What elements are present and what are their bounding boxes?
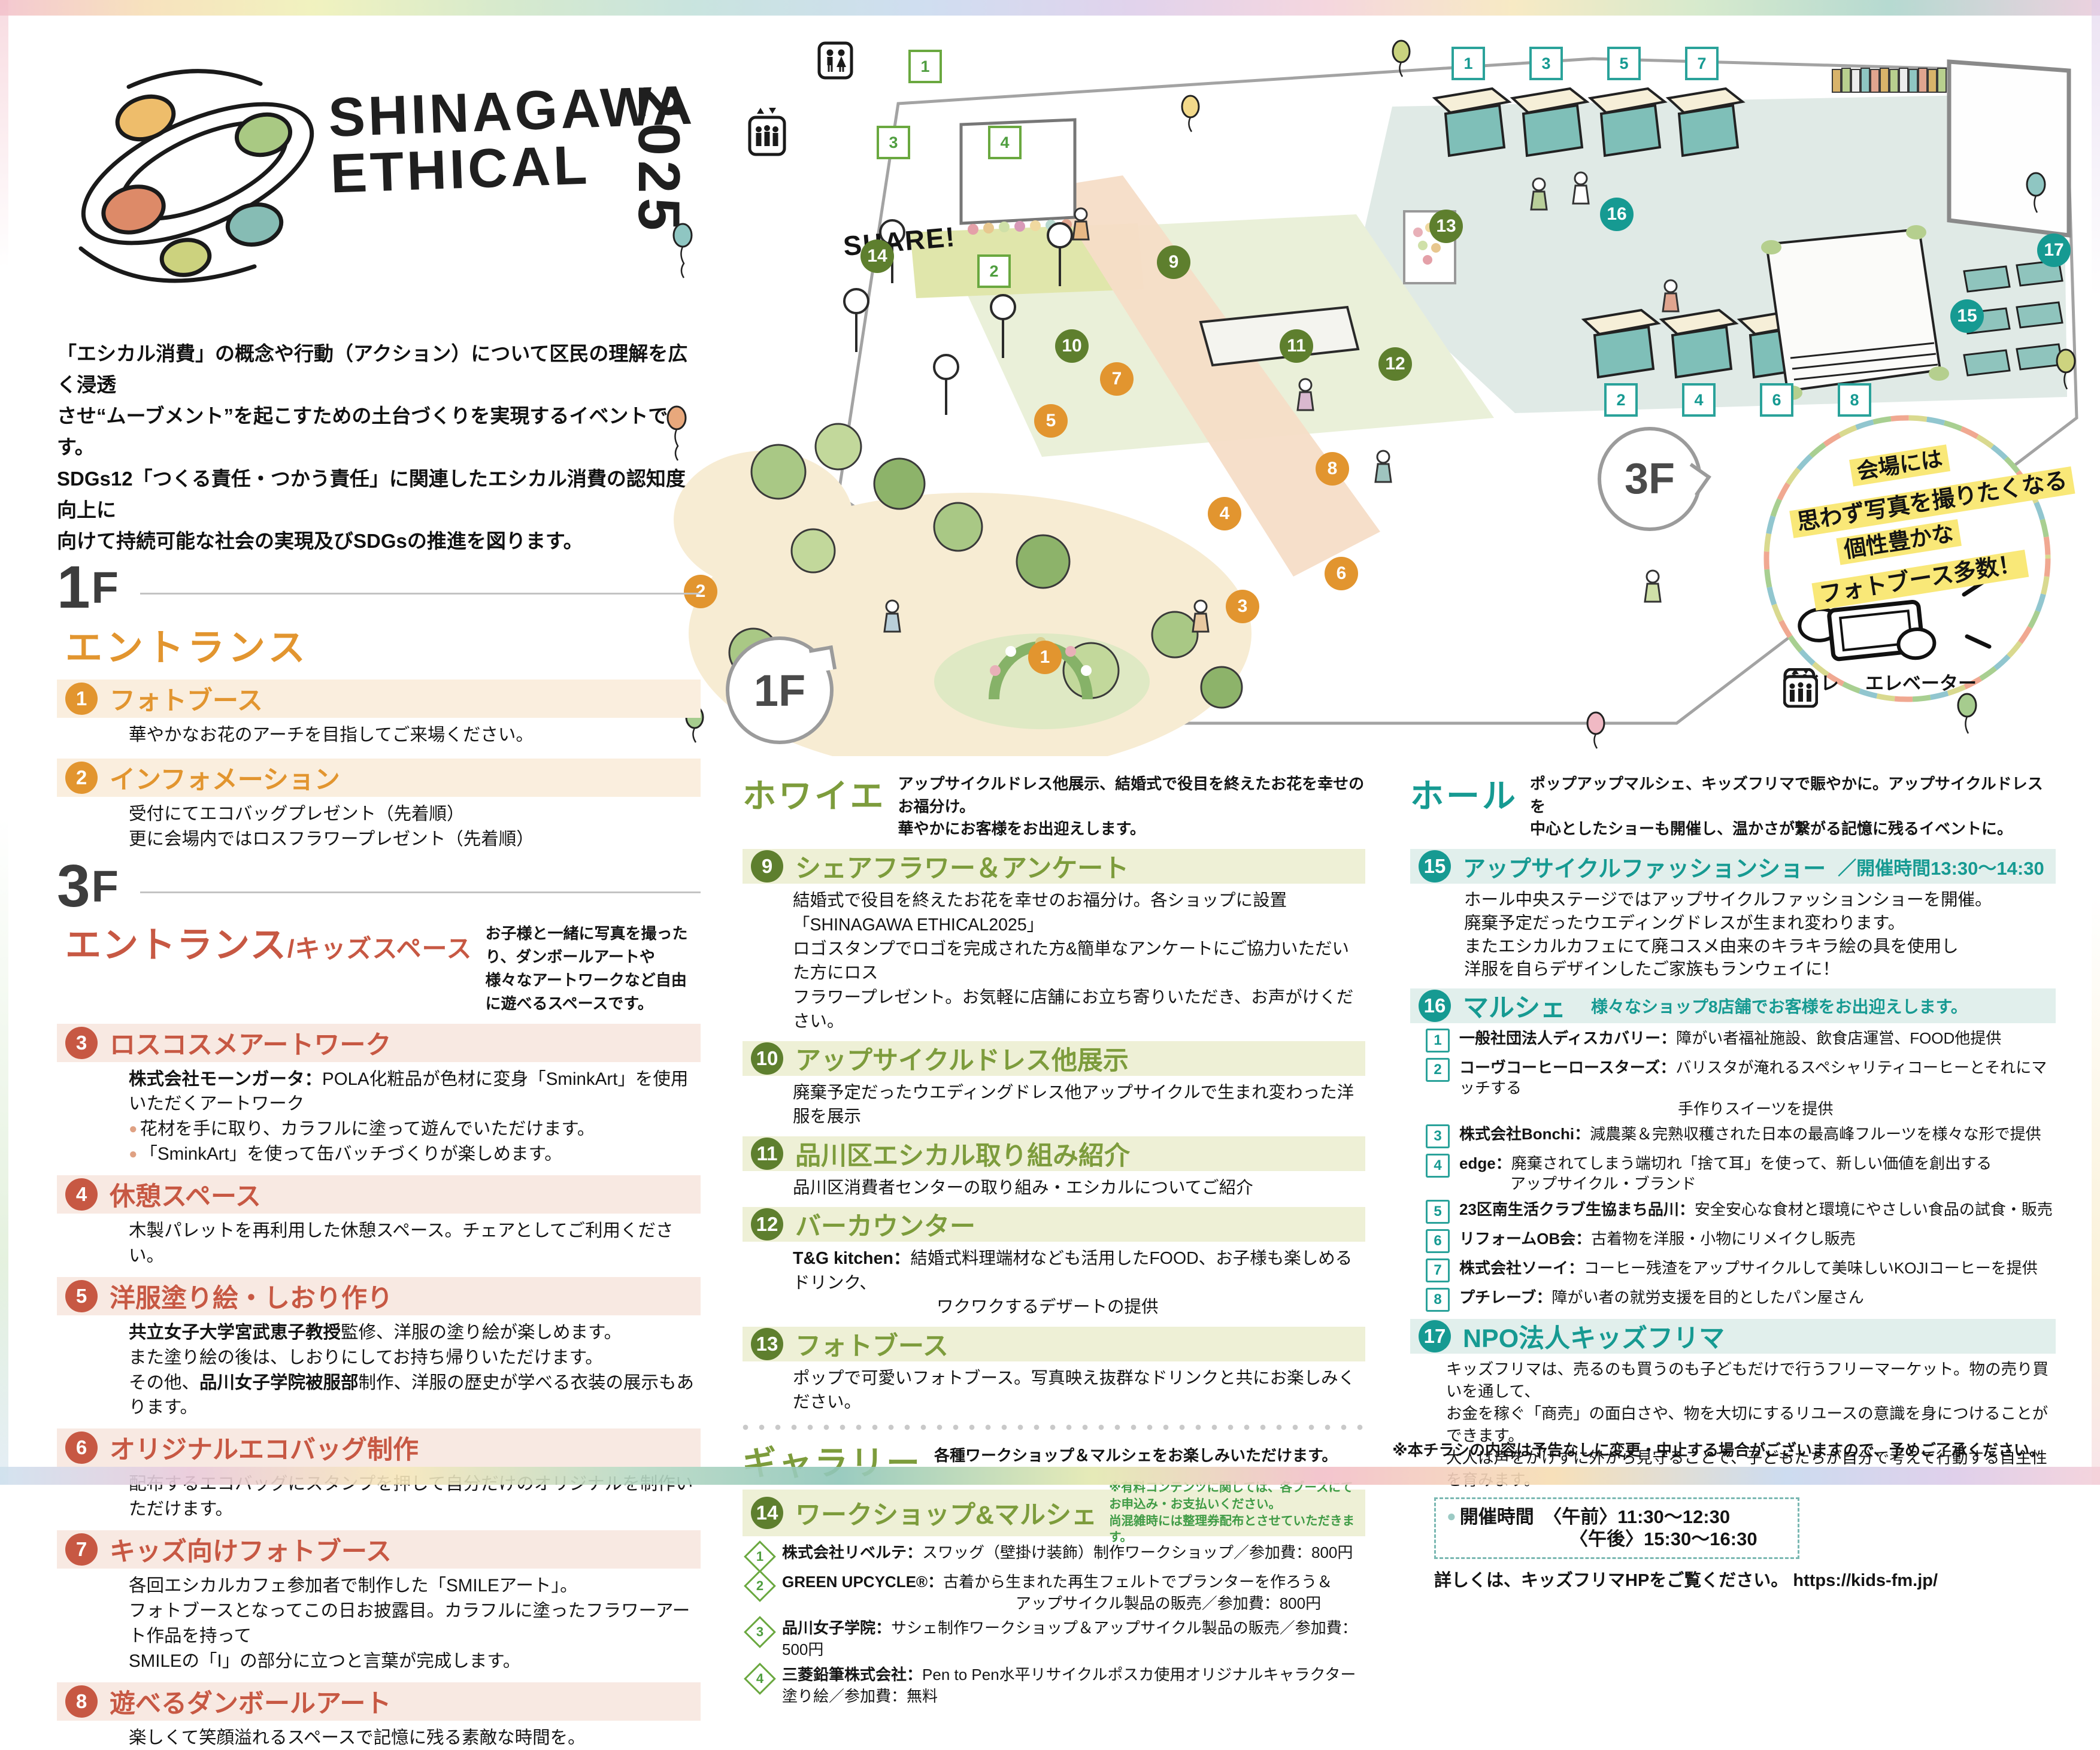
item-title-photobooth: フォトブース	[110, 680, 263, 717]
diamond-number-icon: 3	[744, 1616, 776, 1649]
subtitle-line: 華やかにお客様をお出迎えします。	[898, 818, 1365, 841]
legend-elevator-label: エレベーター	[1865, 668, 1977, 695]
item-title-barcounter: バーカウンター	[795, 1206, 975, 1243]
link-lead-text: 詳しくは、キッズフリマHPをご覧ください。	[1434, 1571, 1788, 1590]
flyer-page: { "logo": {"line1":"SHINAGAWA","line2":"…	[0, 0, 2100, 1485]
workshop-text: 三菱鉛筆株式会社：Pen to Pen水平リサイクルポスカ使用オリジナルキャラク…	[782, 1664, 1365, 1707]
logo-flower-illustration	[57, 51, 332, 302]
item-title-kids-fleamarket: NPO法人キッズフリマ	[1463, 1318, 1725, 1355]
map-badge-sg-1: 1	[908, 50, 942, 83]
desc-line: ホール中央ステージではアップサイクルファッションショーを開催。	[1464, 888, 2056, 912]
map-badge-st-3: 3	[1529, 47, 1563, 80]
kids-fleamarket-link-line: 詳しくは、キッズフリマHPをご覧ください。 https://kids-fm.jp…	[1434, 1566, 2056, 1591]
desc-line: キッズフリマは、売るのも買うのも子どもだけで行うフリーマーケット。物の売り買いを…	[1446, 1358, 2056, 1403]
map-badge-st-7: 7	[1685, 47, 1719, 80]
shop-line: edge：廃棄されてしまう端切れ「捨て耳」を使って、新しい価値を創出する	[1459, 1153, 1992, 1173]
item-band-17: 17 NPO法人キッズフリマ	[1410, 1319, 2056, 1354]
desc-line: ワクワクするデザートの提供	[793, 1295, 1365, 1319]
item-band-16: 16 マルシェ 様々なショップ8店舗でお客様をお出迎えします。	[1410, 988, 2056, 1023]
desc-line: その他、品川女子学院被服部制作、洋服の歴史が学べる衣装の展示もあります。	[129, 1370, 701, 1421]
workshop-row-1: 1 株式会社リベルテ：スワッグ（壁掛け装飾）制作ワークショップ／参加費：800円	[743, 1542, 1365, 1568]
item-badge-1: 1	[65, 683, 98, 715]
desc-line: フォトブースとなってこの日お披露目。カラフルに塗ったフラワーアート作品を持って	[129, 1599, 701, 1649]
item-band-4: 4 休憩スペース	[57, 1175, 701, 1214]
item-title-ecobag: オリジナルエコバッグ制作	[110, 1429, 419, 1466]
subtitle-line: アップサイクルドレス他展示、結婚式で役目を終えたお花を幸せのお福分け。	[898, 773, 1365, 818]
map-badge-ct-16: 16	[1600, 198, 1634, 231]
hall-header: ホール ポップアップマルシェ、キッズフリマで賑やかに。アップサイクルドレスを 中…	[1410, 769, 2056, 841]
note-line: 尚混雑時には整理券配布とさせていただきます。	[1109, 1513, 1358, 1546]
workshop-line: アップサイクル製品の販売／参加費：800円	[782, 1593, 1332, 1615]
item-title-upcycle-dress: アップサイクルドレス他展示	[795, 1040, 1129, 1077]
item-band-2: 2 インフォメーション	[57, 759, 701, 797]
map-badge-sg-3: 3	[877, 126, 910, 159]
teal-dot-icon: ●	[1447, 1507, 1456, 1525]
map-badge-co-1: 1	[1028, 641, 1062, 674]
event-logo: SHINAGAWA ETHICAL 2025	[57, 51, 722, 308]
shop-text: プチレーブ：障がい者の就労支援を目的としたパン屋さん	[1459, 1287, 1864, 1308]
item-badge-13: 13	[751, 1328, 783, 1360]
desc-line: 受付にてエコバッグプレゼント（先着順）	[129, 802, 701, 827]
map-badge-ct-15: 15	[1950, 299, 1984, 333]
shop-text: 一般社団法人ディスカバリー：障がい者福祉施設、飲食店運営、FOOD他提供	[1459, 1028, 2001, 1048]
item-band-3: 3 ロスコスメアートワーク	[57, 1024, 701, 1062]
square-number-icon: 7	[1426, 1258, 1450, 1282]
floor-1f-number: 1	[57, 559, 90, 616]
item-band-9: 9 シェアフラワー＆アンケート	[743, 849, 1365, 884]
section-title-entrance-kids: エントランス/キッズスペース	[65, 916, 472, 968]
item-title-cardboard-art: 遊べるダンボールアート	[110, 1683, 391, 1720]
workshop-text: 株式会社リベルテ：スワッグ（壁掛け装飾）制作ワークショップ／参加費：800円	[782, 1542, 1353, 1564]
kids-fm-url[interactable]: https://kids-fm.jp/	[1793, 1571, 1938, 1590]
bullet-dot-icon: ●	[129, 1121, 138, 1137]
entrance-kids-header: エントランス/キッズスペース お子様と一緒に写真を撮ったり、ダンボールアートや …	[57, 916, 701, 1015]
marche-subtitle: 様々なショップ8店舗でお客様をお出迎えします。	[1591, 994, 1968, 1018]
item-band-6: 6 オリジナルエコバッグ制作	[57, 1428, 701, 1467]
venue-map: 1F 3F 会場には 思わず写真を撮りたくなる 個性豊かな フォトブース多数！ …	[659, 35, 2090, 756]
subtitle-line: お子様と一緒に写真を撮ったり、ダンボールアートや	[485, 922, 701, 969]
shop-row-8: 8 プチレーブ：障がい者の就労支援を目的としたパン屋さん	[1410, 1287, 2056, 1312]
item-desc: ホール中央ステージではアップサイクルファッションショーを開催。 廃棄予定だったウ…	[1464, 888, 2056, 981]
callout-line: 会場には	[1849, 440, 1950, 486]
shop-row-6: 6 リフォームOB会：古着物を洋服・小物にリメイクし販売	[1410, 1229, 2056, 1253]
item-desc: T&G kitchen：結婚式料理端材なども活用したFOOD、お子様も楽しめるド…	[793, 1246, 1365, 1319]
item-desc: 楽しくて笑顔溢れるスペースで記憶に残る素敵な時間を。	[129, 1725, 701, 1750]
item-badge-16: 16	[1419, 990, 1451, 1022]
workshop-row-3: 3 品川女子学院：サシェ制作ワークショップ＆アップサイクル製品の販売／参加費：5…	[743, 1618, 1365, 1661]
item-title-photobooth-foyer: フォトブース	[795, 1326, 949, 1363]
desc-line: ロゴスタンプでロゴを完成された方&簡単なアンケートにご協力いただいた方にロス	[793, 937, 1365, 985]
workshop-row-2: 2 GREEN UPCYCLE®：古着から生まれた再生フェルトでプランターを作ろ…	[743, 1572, 1365, 1615]
item-badge-15: 15	[1419, 850, 1451, 882]
item-band-15: 15 アップサイクルファッションショー ／開催時間13:30～14:30	[1410, 849, 2056, 884]
workshop-text: 品川女子学院：サシェ制作ワークショップ＆アップサイクル製品の販売／参加費：500…	[782, 1618, 1365, 1661]
shop-text: 株式会社ソーイ：コーヒー残渣をアップサイクルして美味しいKOJIコーヒーを提供	[1459, 1258, 2038, 1278]
item-band-11: 11 品川区エシカル取り組み紹介	[743, 1136, 1365, 1171]
section-subtitle: ポップアップマルシェ、キッズフリマで賑やかに。アップサイクルドレスを 中心とした…	[1530, 769, 2056, 841]
desc-line: フラワープレゼント。お気軽に店舗にお立ち寄りいただき、お声がけください。	[793, 985, 1365, 1034]
item-band-1: 1 フォトブース	[57, 680, 701, 718]
desc-line: 共立女子大学宮武恵子教授監修、洋服の塗り絵が楽しめます。	[129, 1320, 701, 1345]
shop-line: アップサイクル・ブランド	[1459, 1173, 1992, 1194]
square-number-icon: 3	[1426, 1124, 1450, 1148]
left-column: 「エシカル消費」の概念や行動（アクション）について区民の理解を広く浸透 させ“ム…	[57, 338, 701, 1750]
item-desc: キッズフリマは、売るのも買うのも子どもだけで行うフリーマーケット。物の売り買いを…	[1446, 1358, 2056, 1492]
item-badge-11: 11	[751, 1138, 783, 1170]
item-badge-7: 7	[65, 1533, 98, 1566]
desc-line: また塗り絵の後は、しおりにしてお持ち帰りいただけます。	[129, 1345, 701, 1370]
desc-line: またエシカルカフェにて廃コスメ由来のキラキラ絵の具を使用し	[1464, 935, 2056, 959]
desc-line: SMILEの「I」の部分に立つと言葉が完成します。	[129, 1649, 701, 1674]
floor-1f-heading: 1F	[57, 559, 701, 616]
workshop-text: GREEN UPCYCLE®：古着から生まれた再生フェルトでプランターを作ろう＆…	[782, 1572, 1332, 1615]
map-badge-st-8: 8	[1838, 383, 1871, 417]
item-band-14: 14 ワークショップ&マルシェ ※有料コンテンツに関しては、各ブースにてお申込み…	[743, 1490, 1365, 1536]
item-band-13: 13 フォトブース	[743, 1327, 1365, 1361]
floor-3f-heading: 3F	[57, 858, 701, 915]
item-band-8: 8 遊べるダンボールアート	[57, 1682, 701, 1721]
item-desc: 廃棄予定だったウエディングドレス他アップサイクルで生まれ変わった洋服を展示	[793, 1081, 1365, 1129]
fashion-show-time: ／開催時間13:30～14:30	[1838, 853, 2044, 880]
elevator-icon	[1783, 668, 1818, 708]
item-desc: 品川区消費者センターの取り組み・エシカルについてご紹介	[793, 1176, 1365, 1200]
desc-line: 結婚式で役目を終えたお花を幸せのお福分け。各ショップに設置「SHINAGAWA …	[793, 888, 1365, 937]
map-badge-co-6: 6	[1325, 557, 1358, 590]
map-badge-sg-4: 4	[988, 126, 1022, 159]
item-title-marche: マルシェ	[1463, 987, 1566, 1024]
diamond-number-icon: 1	[744, 1540, 776, 1573]
section-subtitle: 各種ワークショップ＆マルシェをお楽しみいただけます。	[934, 1436, 1337, 1467]
gallery-header: ギャラリー 各種ワークショップ＆マルシェをお楽しみいただけます。	[743, 1436, 1365, 1485]
shop-row-2: 2 コーヴコーヒーロースターズ：バリスタが淹れるスペシャリティコーヒーとそれにマ…	[1410, 1057, 2056, 1119]
item-desc: ポップで可愛いフォトブース。写真映え抜群なドリンクと共にお楽しみください。	[793, 1366, 1365, 1415]
event-description: 「エシカル消費」の概念や行動（アクション）について区民の理解を広く浸透 させ“ム…	[57, 338, 701, 557]
time-row-am: ●開催時間 〈午前〉11:30～12:30	[1447, 1506, 1787, 1528]
shop-text: リフォームOB会：古着物を洋服・小物にリメイクし販売	[1459, 1229, 1856, 1249]
item-title-rest-space: 休憩スペース	[110, 1176, 261, 1213]
shop-text: コーヴコーヒーロースターズ：バリスタが淹れるスペシャリティコーヒーとそれにマッチ…	[1459, 1057, 2056, 1119]
map-badge-co-7: 7	[1100, 362, 1134, 396]
item-desc: 結婚式で役目を終えたお花を幸せのお福分け。各ショップに設置「SHINAGAWA …	[793, 888, 1365, 1034]
shop-row-4: 4 edge：廃棄されてしまう端切れ「捨て耳」を使って、新しい価値を創出する ア…	[1410, 1153, 2056, 1194]
item-badge-8: 8	[65, 1685, 98, 1718]
photobooth-callout: 会場には 思わず写真を撮りたくなる 個性豊かな フォトブース多数！	[1766, 418, 2048, 699]
desc-line: 各回エシカルカフェ参加者で制作した「SMILEアート」。	[129, 1573, 701, 1599]
legend-elevator: エレベーター	[1865, 668, 1977, 695]
item-badge-10: 10	[751, 1042, 783, 1075]
right-column: ホール ポップアップマルシェ、キッズフリマで賑やかに。アップサイクルドレスを 中…	[1410, 769, 2056, 1591]
item-desc: 株式会社モーンガータ：POLA化粧品が色材に変身「SminkArt」を使用いただ…	[129, 1067, 701, 1167]
middle-column: ホワイエ アップサイクルドレス他展示、結婚式で役目を終えたお花を幸せのお福分け。…	[743, 769, 1365, 1707]
item-title-fashion-show: アップサイクルファッションショー	[1463, 850, 1826, 883]
item-badge-6: 6	[65, 1431, 98, 1464]
foyer-header: ホワイエ アップサイクルドレス他展示、結婚式で役目を終えたお花を幸せのお福分け。…	[743, 769, 1365, 841]
shop-text: 株式会社Bonchi：減農薬＆完熟収穫された日本の最高峰フルーツを様々な形で提供	[1459, 1124, 2041, 1144]
square-number-icon: 1	[1426, 1029, 1450, 1053]
square-number-icon: 2	[1426, 1058, 1450, 1082]
map-badge-cg-14: 14	[860, 239, 894, 273]
map-badge-cg-9: 9	[1157, 245, 1190, 279]
divider-line	[140, 891, 701, 893]
watercolor-border-right	[2092, 0, 2100, 1485]
desc-line: 更に会場内ではロスフラワープレゼント（先着順）	[129, 827, 701, 852]
floor-1f-suffix: F	[92, 562, 119, 613]
intro-line: 「エシカル消費」の概念や行動（アクション）について区民の理解を広く浸透	[57, 338, 701, 401]
subtitle-line: ポップアップマルシェ、キッズフリマで賑やかに。アップサイクルドレスを	[1530, 773, 2056, 818]
intro-line: SDGs12「つくる責任・つかう責任」に関連したエシカル消費の認知度向上に	[57, 463, 701, 526]
map-badge-st-4: 4	[1682, 383, 1716, 417]
item-title-losscosme-artwork: ロスコスメアートワーク	[110, 1024, 391, 1061]
section-title-entrance-1f: エントランス	[65, 617, 701, 671]
map-badge-st-5: 5	[1607, 47, 1641, 80]
item-desc: 華やかなお花のアーチを目指してご来場ください。	[129, 723, 701, 748]
map-badge-co-8: 8	[1316, 452, 1349, 486]
paid-content-note: ※有料コンテンツに関しては、各ブースにてお申込み・お支払いください。 尚混雑時に…	[1109, 1479, 1358, 1546]
kids-fleamarket-times: ●開催時間 〈午前〉11:30～12:30 〈午後〉15:30～16:30	[1434, 1497, 1799, 1559]
item-badge-14: 14	[751, 1497, 783, 1529]
diamond-number-icon: 4	[744, 1663, 776, 1695]
dotted-separator	[743, 1424, 1365, 1430]
square-number-icon: 8	[1426, 1288, 1450, 1312]
desc-line: 洋服を自らデザインしたご家族もランウェイに！	[1464, 958, 2056, 981]
section-subtitle: お子様と一緒に写真を撮ったり、ダンボールアートや 様々なアートワークなど自由に遊…	[485, 916, 701, 1015]
watercolor-border-left	[0, 0, 8, 1485]
divider-line	[140, 593, 701, 595]
desc-line: ●「SminkArt」を使って缶バッチづくりが楽しめます。	[129, 1142, 701, 1167]
shop-row-1: 1 一般社団法人ディスカバリー：障がい者福祉施設、飲食店運営、FOOD他提供	[1410, 1028, 2056, 1053]
floor-bubble-1f: 1F	[726, 636, 834, 744]
square-number-icon: 4	[1426, 1154, 1450, 1178]
item-band-12: 12 バーカウンター	[743, 1207, 1365, 1242]
section-subtitle: アップサイクルドレス他展示、結婚式で役目を終えたお花を幸せのお福分け。 華やかに…	[898, 769, 1365, 841]
square-number-icon: 5	[1426, 1200, 1450, 1224]
item-title-information: インフォメーション	[110, 759, 340, 796]
shop-row-5: 5 23区南生活クラブ生協まち品川：安全安心な食材と環境にやさしい食品の試食・販…	[1410, 1199, 2056, 1224]
shop-text: edge：廃棄されてしまう端切れ「捨て耳」を使って、新しい価値を創出する アップ…	[1459, 1153, 1992, 1194]
workshop-line: GREEN UPCYCLE®：古着から生まれた再生フェルトでプランターを作ろう＆	[782, 1572, 1332, 1593]
map-badge-cg-12: 12	[1378, 347, 1412, 381]
item-desc: 木製パレットを再利用した休憩スペース。チェアとしてご利用ください。	[129, 1218, 701, 1269]
item-band-7: 7 キッズ向けフォトブース	[57, 1530, 701, 1569]
footer-disclaimer: ※本チラシの内容は予告なしに変更・中止する場合がございますので、予めご了承くださ…	[1392, 1438, 2045, 1460]
floor-3f-number: 3	[57, 858, 90, 915]
map-badge-ct-17: 17	[2037, 233, 2071, 267]
item-title-shinagawa-ethical-intro: 品川区エシカル取り組み紹介	[795, 1135, 1130, 1172]
desc-line: ●花材を手に取り、カラフルに塗って遊んでいただけます。	[129, 1117, 701, 1142]
item-band-10: 10 アップサイクルドレス他展示	[743, 1041, 1365, 1076]
item-desc: 配布するエコバッグにスタンプを押して自分だけのオリジナルを制作いただけます。	[129, 1472, 701, 1522]
item-title-kids-photobooth: キッズ向けフォトブース	[110, 1531, 392, 1568]
item-desc: 各回エシカルカフェ参加者で制作した「SMILEアート」。 フォトブースとなってこ…	[129, 1573, 701, 1674]
map-badge-co-5: 5	[1034, 404, 1068, 438]
map-badge-st-1: 1	[1451, 47, 1485, 80]
item-badge-12: 12	[751, 1208, 783, 1241]
map-badge-st-2: 2	[1604, 383, 1638, 417]
shop-row-7: 7 株式会社ソーイ：コーヒー残渣をアップサイクルして美味しいKOJIコーヒーを提…	[1410, 1258, 2056, 1282]
shop-text: 23区南生活クラブ生協まち品川：安全安心な食材と環境にやさしい食品の試食・販売	[1459, 1199, 2053, 1220]
section-title-hall: ホール	[1410, 769, 1518, 818]
subtitle-line: 様々なアートワークなど自由に遊べるスペースです。	[485, 969, 701, 1015]
diamond-number-icon: 2	[744, 1570, 776, 1602]
item-title-workshop-marche: ワークショップ&マルシェ	[795, 1494, 1097, 1531]
bullet-dot-icon: ●	[129, 1146, 138, 1162]
intro-line: させ“ムーブメント”を起こすための土台づくりを実現するイベントです。	[57, 401, 701, 463]
section-title-gallery: ギャラリー	[743, 1436, 922, 1485]
section-title-foyer: ホワイエ	[743, 769, 886, 818]
shop-line: 手作りスイーツを提供	[1459, 1099, 2056, 1119]
desc-line: T&G kitchen：結婚式料理端材なども活用したFOOD、お子様も楽しめるド…	[793, 1246, 1365, 1295]
square-number-icon: 6	[1426, 1229, 1450, 1253]
subtitle-line: 中心としたショーも開催し、温かさが繋がる記憶に残るイベントに。	[1530, 818, 2056, 841]
floor-bubble-3f: 3F	[1598, 427, 1702, 531]
map-badge-co-4: 4	[1208, 497, 1241, 530]
item-badge-3: 3	[65, 1027, 98, 1059]
item-badge-4: 4	[65, 1178, 98, 1211]
item-badge-5: 5	[65, 1280, 98, 1312]
item-badge-9: 9	[751, 850, 783, 882]
map-badge-cg-13: 13	[1429, 210, 1463, 243]
map-badge-sg-2: 2	[977, 254, 1011, 288]
intro-line: 向けて持続可能な社会の実現及びSDGsの推進を図ります。	[57, 526, 701, 557]
item-desc: 共立女子大学宮武恵子教授監修、洋服の塗り絵が楽しめます。 また塗り絵の後は、しお…	[129, 1320, 701, 1421]
map-badge-co-3: 3	[1226, 590, 1259, 623]
item-title-coloring-bookmark: 洋服塗り絵・しおり作り	[110, 1278, 393, 1315]
workshop-row-4: 4 三菱鉛筆株式会社：Pen to Pen水平リサイクルポスカ使用オリジナルキャ…	[743, 1664, 1365, 1707]
item-band-5: 5 洋服塗り絵・しおり作り	[57, 1277, 701, 1315]
map-legend: トイレ エレベーター	[1783, 668, 1977, 695]
item-desc: 受付にてエコバッグプレゼント（先着順） 更に会場内ではロスフラワープレゼント（先…	[129, 802, 701, 852]
watercolor-border-top	[0, 0, 2100, 16]
desc-line: 株式会社モーンガータ：POLA化粧品が色材に変身「SminkArt」を使用いただ…	[129, 1067, 701, 1117]
item-badge-17: 17	[1419, 1320, 1451, 1352]
map-badge-st-6: 6	[1760, 383, 1793, 417]
item-badge-2: 2	[65, 762, 98, 794]
desc-line: 廃棄予定だったウエディングドレスが生まれ変わります。	[1464, 912, 2056, 935]
item-title-shareflower: シェアフラワー＆アンケート	[795, 848, 1129, 885]
floor-3f-suffix: F	[92, 861, 119, 912]
time-row-pm: 〈午後〉15:30～16:30	[1447, 1528, 1787, 1551]
shop-line: コーヴコーヒーロースターズ：バリスタが淹れるスペシャリティコーヒーとそれにマッチ…	[1459, 1057, 2056, 1099]
map-badge-cg-11: 11	[1280, 329, 1313, 363]
map-badge-cg-10: 10	[1055, 329, 1089, 363]
shop-row-3: 3 株式会社Bonchi：減農薬＆完熟収穫された日本の最高峰フルーツを様々な形で…	[1410, 1124, 2056, 1148]
